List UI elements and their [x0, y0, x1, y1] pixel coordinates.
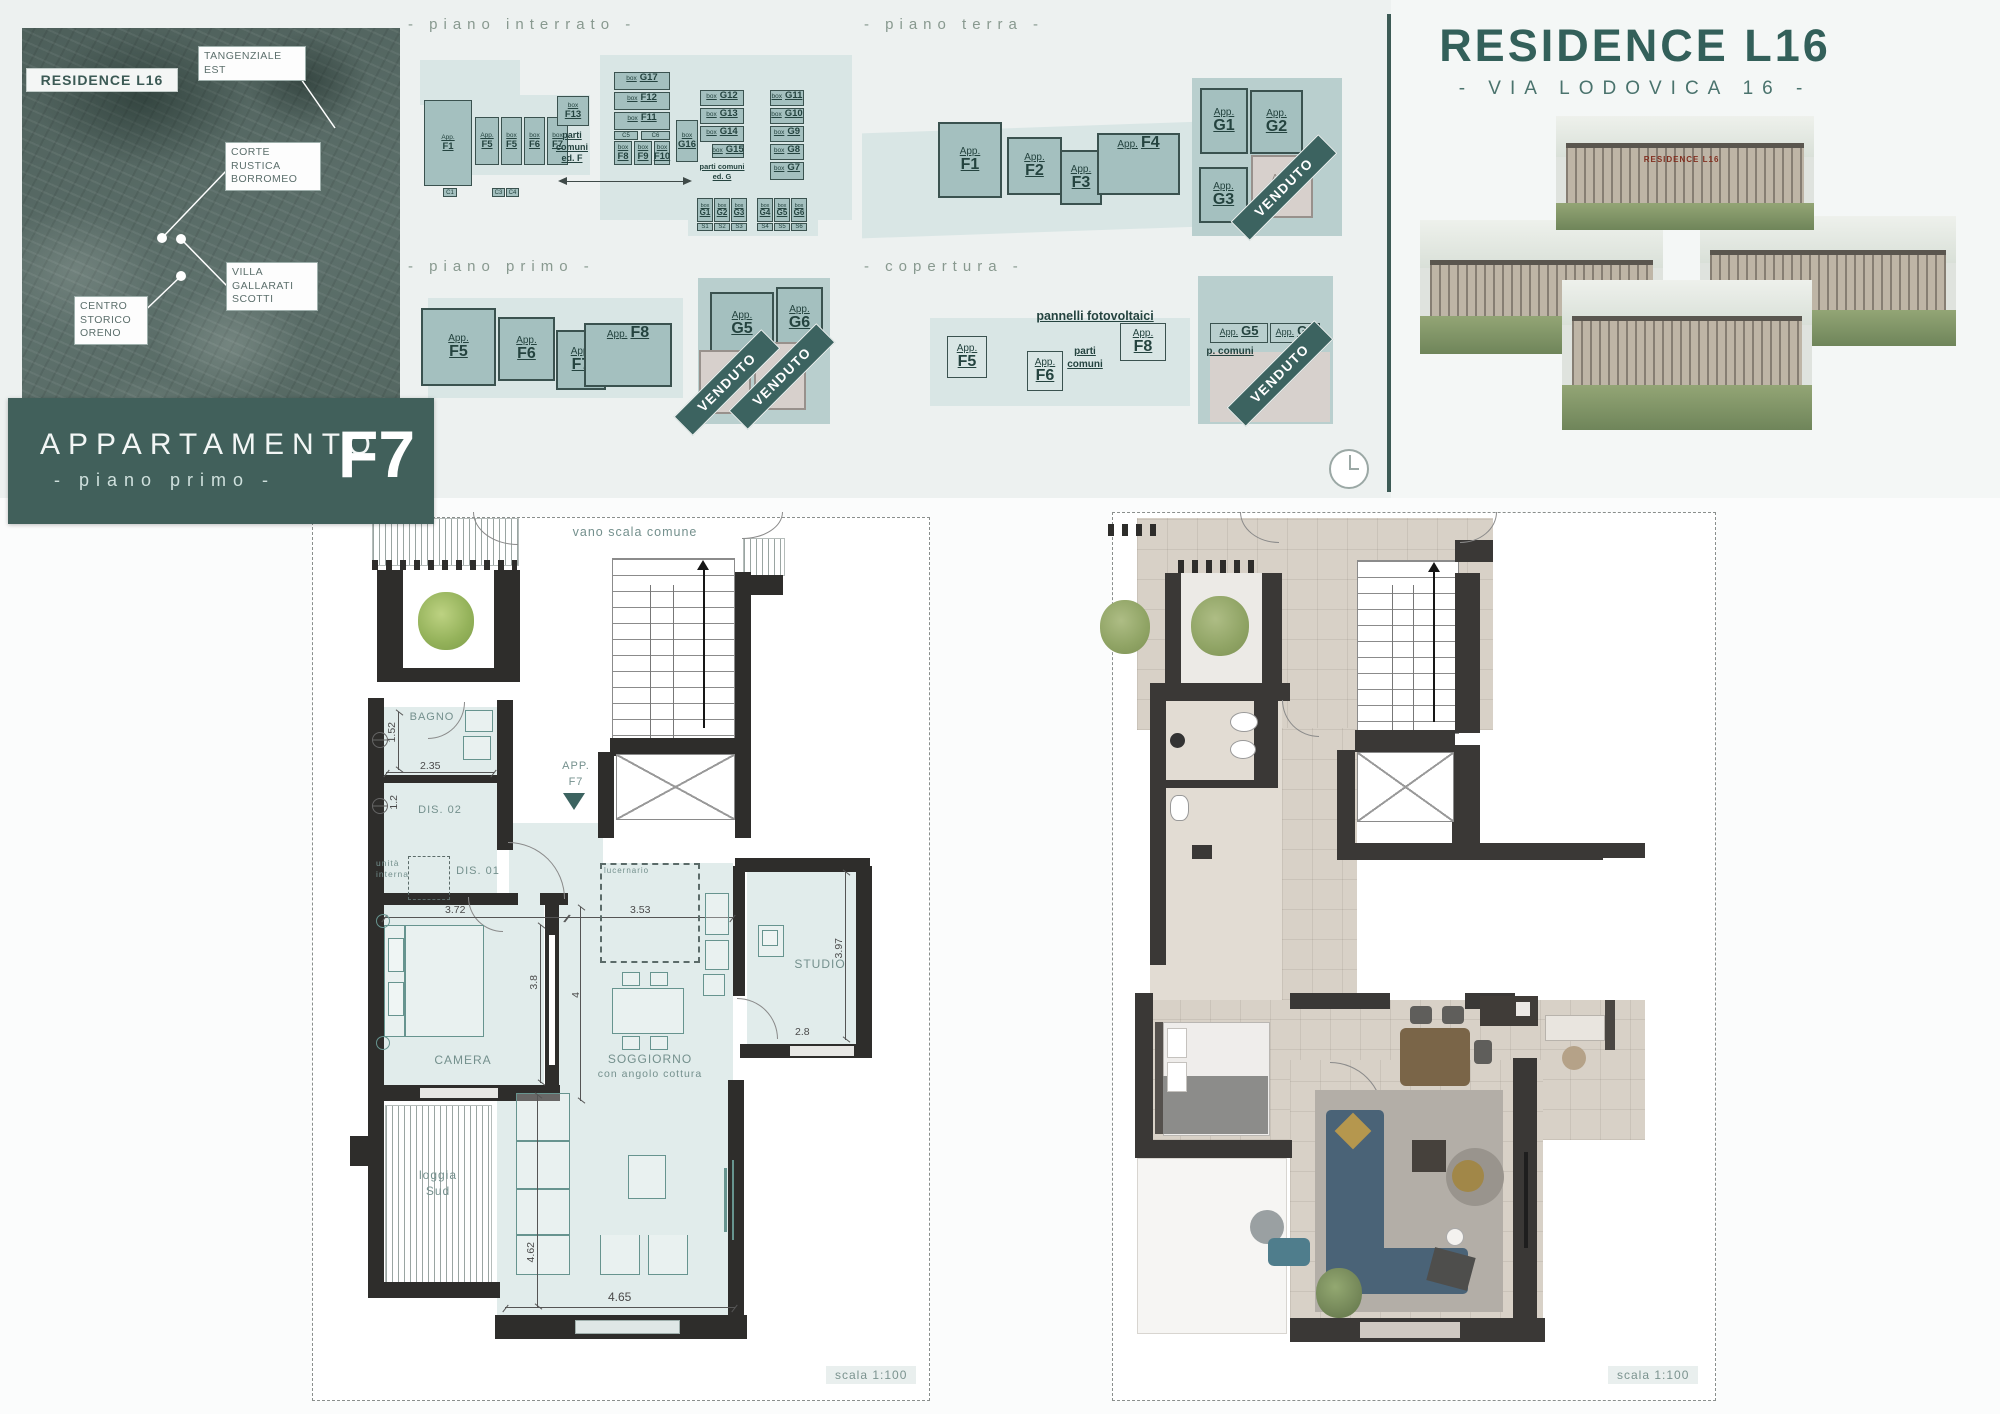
wall: [1150, 1140, 1292, 1158]
cell-box: S1: [697, 223, 713, 231]
unit-box: App.F8: [584, 323, 672, 387]
unit-box: App.F3: [1060, 150, 1102, 205]
pannelli-fotovoltaici-label: pannelli fotovoltaici: [1000, 308, 1190, 324]
nightstand-icon: [376, 914, 390, 928]
section-header: - piano primo -: [408, 258, 595, 275]
unit-box: App.F8: [1120, 323, 1166, 361]
unit-box: App.G2: [1250, 90, 1303, 154]
scale-label: scala 1:100: [1608, 1366, 1698, 1384]
wall: [1192, 845, 1212, 859]
dim-label: 3.53: [630, 904, 650, 916]
unit-box: App.F1: [938, 122, 1002, 198]
wall: [1262, 573, 1282, 685]
room-label-bagno: BAGNO: [400, 710, 464, 724]
wall: [1150, 683, 1290, 701]
apartment-marker-icon: [563, 793, 585, 810]
title-block-line1: APPARTAMENTO: [40, 428, 379, 462]
stair-stringer: [650, 585, 674, 738]
outside-area: [1493, 518, 1714, 730]
unit-box: boxF6: [524, 117, 545, 165]
ramp-arrow: [560, 181, 690, 182]
unit-box: boxG7: [770, 162, 804, 180]
room-label-soggiorno: SOGGIORNO: [590, 1052, 710, 1068]
map-logo-text: RESIDENCE L16: [41, 72, 164, 88]
unit-box: boxF12: [614, 92, 670, 110]
tree-icon: [1100, 600, 1150, 654]
wall: [733, 866, 745, 996]
wall: [494, 570, 520, 674]
terrace: [1137, 1158, 1287, 1334]
tv-wall-line: [732, 1160, 734, 1240]
wall: [377, 570, 403, 674]
room-label-lucernario: lucernario: [604, 866, 656, 876]
elevator: [1357, 752, 1454, 822]
dim-label: 4: [570, 992, 582, 998]
pocket-door: [549, 935, 555, 1065]
kitchen-counter: [703, 974, 725, 996]
dim-line: [505, 1307, 735, 1308]
bed-pillow: [1167, 1062, 1187, 1092]
dim-line: [398, 712, 399, 770]
window: [420, 1088, 498, 1098]
room-label-vano-scala: vano scala comune: [570, 524, 700, 540]
room-label-soggiorno2: con angolo cottura: [583, 1068, 717, 1082]
unit-box: boxG6: [791, 198, 807, 222]
unit-box: boxG14: [700, 126, 744, 142]
unit-box: App.F6: [1027, 351, 1063, 391]
chair: [650, 1036, 668, 1050]
map-callout-villa: VILLA GALLARATI SCOTTI: [226, 262, 318, 311]
coffee-table: [1412, 1140, 1446, 1172]
wall: [1455, 573, 1480, 733]
bed-pillow: [388, 982, 404, 1016]
sofa: [516, 1093, 570, 1235]
dim-label: 2.8: [795, 1026, 810, 1038]
unit-box: App.F5: [475, 117, 499, 165]
wall: [497, 700, 513, 850]
unit-box: App.F5: [947, 336, 987, 378]
dim-line: [580, 907, 581, 1101]
facade-sign: RESIDENCE L16: [1644, 155, 1720, 164]
parti-comuni-g-label: parti comuni ed. G: [692, 162, 752, 182]
unit-box: boxG9: [770, 126, 804, 142]
wall: [1135, 993, 1153, 1158]
chair: [622, 1036, 640, 1050]
cell-box: S3: [731, 223, 747, 231]
bath-fixture: [463, 736, 491, 760]
dim-label: 4.62: [525, 1242, 537, 1262]
armchair: [600, 1235, 640, 1275]
wall: [1150, 845, 1166, 965]
map-callout-tangenziale: TANGENZIALE EST: [198, 46, 306, 81]
brochure-sheet: RESIDENCE L16 TANGENZIALE EST CORTE RUST…: [0, 0, 2000, 1414]
unit-box: boxG11: [770, 90, 804, 106]
unit-box: App.F4: [1097, 133, 1180, 195]
building-render-image: [1562, 280, 1812, 430]
kitchen-counter: [705, 940, 729, 970]
kitchen-sink: [1516, 1002, 1530, 1016]
bed-headboard: [1155, 1022, 1163, 1134]
wall: [1150, 700, 1166, 845]
wall: [1452, 745, 1480, 847]
window-door: [575, 1320, 680, 1334]
brand-title: RESIDENCE L16: [1405, 20, 1865, 72]
unit-box: boxG17: [614, 72, 670, 90]
map-callout-centro: CENTRO STORICO ORENO: [74, 296, 148, 345]
stair-arrow-icon: [697, 560, 709, 570]
chair: [622, 972, 640, 986]
section-header: - piano terra -: [864, 16, 1044, 33]
unit-box: boxF8: [614, 141, 632, 165]
kitchen-counter: [705, 893, 729, 935]
chair: [1410, 1006, 1432, 1024]
wall: [1337, 750, 1355, 846]
room-label-dis02: DIS. 02: [410, 803, 470, 817]
wall: [368, 1282, 500, 1298]
shelf: [1605, 1000, 1615, 1050]
brand-subtitle: - VIA LODOVICA 16 -: [1405, 78, 1865, 100]
dim-label: 1.2: [388, 795, 400, 810]
desk-chair: [1562, 1046, 1586, 1070]
dim-label: 3.72: [445, 904, 465, 916]
tv: [1524, 1152, 1528, 1248]
desk-chair: [762, 930, 778, 946]
tv: [724, 1168, 727, 1232]
section-header: - copertura -: [864, 258, 1024, 275]
stair-stringer: [1392, 585, 1414, 732]
bath-fixture: [465, 710, 493, 732]
title-block-line2: - piano primo -: [54, 470, 275, 491]
clock-icon: [1329, 449, 1369, 489]
unit-box: boxG4: [757, 198, 773, 222]
building-render-image: RESIDENCE L16: [1556, 116, 1814, 230]
room-label-camera: CAMERA: [418, 1053, 508, 1069]
wall: [1337, 843, 1603, 860]
map-callout-corte: CORTE RUSTICA BORROMEO: [225, 142, 321, 191]
room-label-studio: STUDIO: [780, 957, 860, 973]
coffee-table: [628, 1155, 666, 1199]
bed-line: [404, 925, 406, 1037]
cell-box: C5: [614, 131, 638, 140]
unit-box: boxF9: [634, 141, 652, 165]
wall: [1603, 843, 1645, 858]
plant-icon: [1316, 1268, 1362, 1318]
unit-box: App.G5: [1210, 323, 1268, 343]
scale-label: scala 1:100: [826, 1366, 916, 1384]
cell-box: C4: [506, 188, 519, 197]
cell-box: S6: [791, 223, 807, 231]
wall: [382, 775, 497, 783]
section-header: - piano interrato -: [408, 16, 636, 33]
fixture: [1170, 733, 1185, 748]
wall: [1165, 573, 1181, 685]
dining-table: [1400, 1028, 1470, 1086]
dim-label: 3.97: [833, 938, 845, 958]
unit-box: boxG3: [731, 198, 747, 222]
bed-pillow: [388, 938, 404, 972]
room-label-unita: unità interna: [376, 858, 424, 880]
room-label-dis01: DIS. 01: [450, 864, 506, 878]
floor-lamp: [1446, 1228, 1464, 1246]
wall: [735, 572, 751, 838]
dining-table: [612, 988, 684, 1034]
unit-box: boxF11: [614, 112, 670, 130]
wall: [735, 858, 870, 872]
unit-box: boxG2: [714, 198, 730, 222]
dim-label: 1.52: [386, 722, 398, 742]
unit-box: boxG12: [700, 90, 744, 106]
chair: [650, 972, 668, 986]
window-door: [1360, 1322, 1460, 1338]
title-block: APPARTAMENTO - piano primo - F7: [8, 398, 434, 524]
room-label-loggia: loggia Sud: [408, 1168, 468, 1199]
dim-label: 4.65: [608, 1290, 631, 1304]
sink: [1230, 712, 1258, 732]
dim-label: 3.8: [528, 975, 540, 990]
apartment-marker-unit: F7: [548, 775, 604, 789]
unit-box: boxG13: [700, 108, 744, 124]
desk: [1545, 1015, 1605, 1041]
wall: [735, 575, 783, 595]
stair-arrow-stem: [1433, 572, 1435, 722]
cell-box: C3: [492, 188, 505, 197]
lounge-chair: [1268, 1238, 1310, 1266]
parti-comuni-label: parti comuni: [1062, 345, 1108, 371]
dim-line: [384, 917, 567, 918]
elevator: [616, 754, 735, 820]
panel-divider: [1387, 14, 1391, 492]
dim-line: [386, 772, 494, 773]
dim-label: 2.35: [420, 760, 440, 772]
cell-box: S2: [714, 223, 730, 231]
unit-box: boxF5: [501, 117, 522, 165]
unit-box: App.F5: [421, 308, 496, 386]
unit-box: boxG5: [774, 198, 790, 222]
parti-comuni-f-label: parti comuni ed. F: [548, 130, 596, 165]
unit-box: App.F2: [1007, 137, 1062, 195]
chair: [1442, 1006, 1464, 1024]
wall: [1455, 540, 1493, 562]
p-comuni-label: p. comuni: [1200, 345, 1260, 358]
unit-box: boxG1: [697, 198, 713, 222]
toilet: [1170, 795, 1189, 821]
dim-line: [845, 872, 846, 1040]
wall: [377, 668, 520, 682]
unit-box: App.F1: [424, 100, 472, 186]
unit-box: App.G1: [1200, 88, 1248, 154]
unit-box: boxG10: [770, 108, 804, 124]
unit-box: boxG15: [712, 144, 744, 158]
sink: [1230, 740, 1256, 759]
stair-arrow-icon: [1428, 562, 1440, 572]
armchair: [648, 1235, 688, 1275]
wall: [368, 698, 384, 1296]
wall: [350, 1136, 368, 1166]
wall: [1355, 730, 1455, 752]
bed-pillow: [1167, 1028, 1187, 1058]
dim-line: [540, 925, 541, 1083]
title-block-unit: F7: [338, 416, 415, 492]
side-table: [1452, 1160, 1484, 1192]
chair: [1474, 1040, 1492, 1064]
cell-box: S5: [774, 223, 790, 231]
unit-box: boxG16: [676, 120, 698, 162]
window: [790, 1046, 854, 1056]
wall: [1290, 993, 1390, 1009]
tree-icon: [1191, 596, 1249, 656]
apartment-marker-label: APP.: [548, 760, 604, 774]
cell-box: S4: [757, 223, 773, 231]
cell-box: C6: [641, 131, 670, 140]
cell-box: C1: [443, 188, 457, 197]
nightstand-icon: [376, 1036, 390, 1050]
map-logo-badge: RESIDENCE L16: [26, 68, 178, 92]
unit-box: boxG8: [770, 144, 804, 160]
stair-arrow-stem: [703, 570, 705, 728]
plumbing-symbol-icon: [372, 798, 388, 814]
tree-icon: [418, 592, 474, 650]
unit-box: boxF10: [654, 141, 670, 165]
wall: [728, 1080, 744, 1320]
dim-line: [537, 1095, 538, 1307]
unit-box: boxF13: [557, 96, 589, 126]
sofa-line: [516, 1140, 570, 1142]
unit-box: App.F6: [498, 317, 555, 381]
sofa-line: [516, 1188, 570, 1190]
wall: [1254, 700, 1278, 788]
